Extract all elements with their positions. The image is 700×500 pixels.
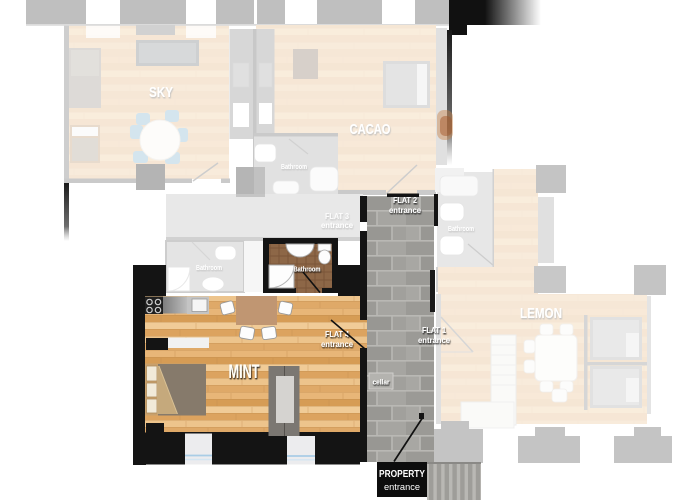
svg-text:cellar: cellar (373, 378, 390, 387)
svg-text:Bathroom: Bathroom (196, 265, 222, 272)
svg-text:PROPERTY: PROPERTY (379, 468, 425, 480)
svg-text:entrance: entrance (389, 205, 421, 215)
svg-text:entrance: entrance (321, 339, 353, 349)
svg-text:Bathroom: Bathroom (294, 265, 321, 274)
svg-text:CACAO: CACAO (350, 121, 391, 138)
svg-text:FLAT 4: FLAT 4 (325, 329, 349, 339)
svg-text:LEMON: LEMON (520, 305, 562, 322)
svg-text:Bathroom: Bathroom (281, 164, 307, 171)
svg-text:entrance: entrance (321, 220, 353, 230)
svg-text:SKY: SKY (149, 84, 173, 101)
svg-text:FLAT 1: FLAT 1 (422, 325, 446, 335)
svg-text:entrance: entrance (384, 482, 420, 493)
svg-text:Bathroom: Bathroom (448, 226, 474, 233)
svg-text:entrance: entrance (418, 335, 450, 345)
svg-text:FLAT 2: FLAT 2 (393, 195, 417, 205)
svg-text:MINT: MINT (229, 362, 260, 383)
